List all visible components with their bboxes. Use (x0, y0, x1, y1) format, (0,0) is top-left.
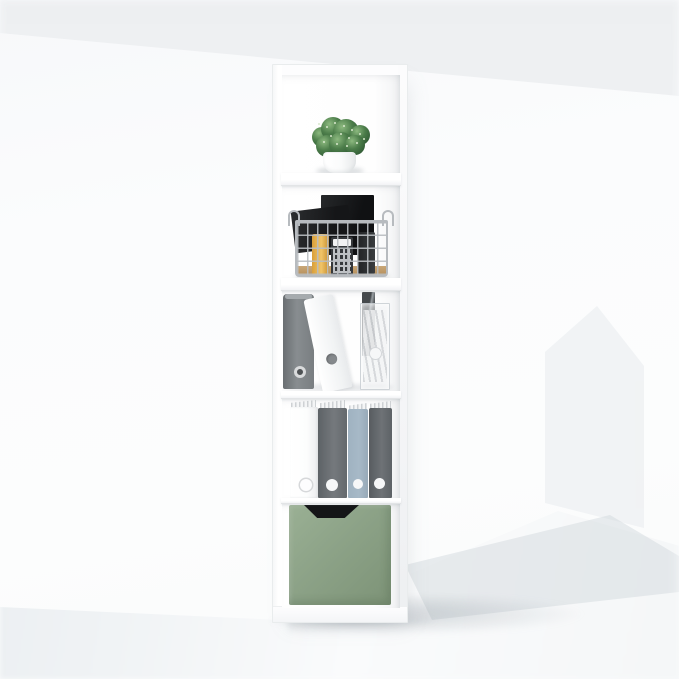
bookcase-left-frame (273, 65, 282, 622)
file-finger-hole (374, 478, 385, 489)
white-binder-finger-hole (325, 352, 338, 365)
cube-1-plant-shelf (282, 75, 400, 173)
acrylic-file-box (360, 303, 390, 390)
cube-5-bin-shelf (282, 504, 400, 608)
acrylic-box-finger-hole (370, 348, 381, 359)
cube-2-basket-shelf (282, 186, 400, 278)
basket-handle-left (288, 210, 300, 226)
shelf-board-1 (281, 173, 401, 186)
shelf-board-2 (281, 278, 401, 291)
wire-basket (295, 220, 388, 277)
plant-pot (323, 152, 356, 173)
papers-in-box (363, 310, 387, 382)
file-finger-hole (353, 479, 363, 489)
bookcase-bottom-frame (273, 606, 407, 622)
shelf-board-3 (281, 391, 401, 399)
bookcase-interior (282, 75, 400, 608)
bin-handle-cutout (304, 505, 359, 518)
basket-handle-right (382, 210, 394, 226)
gray-binder-finger-hole (294, 366, 306, 378)
green-fabric-bin (289, 505, 391, 605)
cube-3-binder-shelf (282, 291, 400, 391)
file-finger-hole (300, 479, 312, 491)
file-finger-hole (326, 479, 338, 491)
leaf-speckles (318, 123, 320, 125)
plant-foliage (312, 117, 370, 157)
scene (0, 0, 679, 679)
bookcase (272, 64, 408, 623)
cube-4-file-shelf (282, 399, 400, 498)
shelf-board-4 (281, 498, 401, 504)
